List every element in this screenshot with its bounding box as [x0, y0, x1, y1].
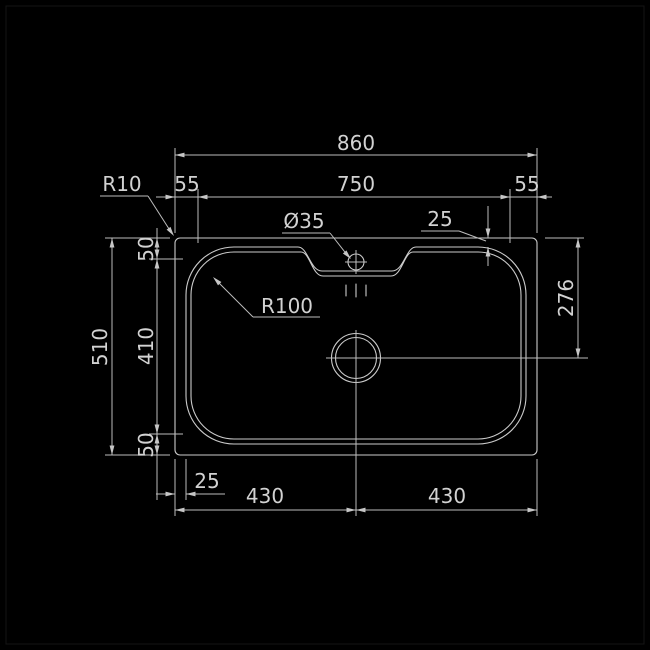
dim-label: 430 [428, 484, 466, 508]
sink-outline [175, 238, 588, 516]
arrowhead [486, 229, 491, 239]
leader-line [216, 280, 253, 317]
leader-line [148, 196, 171, 232]
image-border [6, 6, 644, 644]
dim-outer-corner-radius: R10 [100, 172, 176, 237]
arrowhead [528, 153, 538, 158]
arrowhead [347, 508, 357, 513]
dim-label: 50 [134, 236, 158, 261]
arrowhead [175, 153, 185, 158]
dim-label: 430 [246, 484, 284, 508]
dim-label: 860 [337, 131, 375, 155]
arrowhead [110, 238, 115, 248]
dim-label: R10 [102, 172, 141, 196]
arrowhead [356, 508, 366, 513]
dim-label: Ø35 [283, 209, 324, 233]
dim-label: 750 [337, 172, 375, 196]
tap-hole [345, 250, 367, 274]
leader-line [459, 231, 486, 241]
dim-label: 25 [194, 469, 219, 493]
arrowhead [501, 195, 511, 200]
arrowhead [528, 508, 538, 513]
dim-label: 410 [134, 327, 158, 365]
drawing-canvas: 860 55 750 55 R10 Ø35 [0, 0, 650, 650]
dim-label: 55 [174, 172, 199, 196]
dimensions: 860 55 750 55 R10 Ø35 [88, 131, 584, 516]
overflow-marks [346, 284, 366, 297]
arrowhead [166, 492, 176, 497]
arrowhead [175, 508, 185, 513]
dim-tap-hole-diameter: Ø35 [282, 209, 353, 261]
dim-label: 510 [88, 328, 112, 366]
dim-bowl-height-chain: 50 410 50 [134, 228, 183, 500]
dim-label: 55 [514, 172, 539, 196]
technical-drawing: 860 55 750 55 R10 Ø35 [0, 0, 650, 650]
dim-rim-offset-top: 25 [421, 206, 490, 266]
arrowhead [576, 349, 581, 359]
arrowhead [576, 238, 581, 248]
dim-label: R100 [261, 294, 313, 318]
dim-bowl-corner-radius: R100 [211, 275, 320, 318]
dim-label: 25 [427, 207, 452, 231]
arrowhead [110, 446, 115, 456]
dim-label: 50 [134, 432, 158, 457]
dim-label: 276 [554, 279, 578, 317]
dim-drain-center-from-top: 276 [545, 238, 584, 358]
dim-bowl-width-row: 55 750 55 [156, 172, 552, 243]
dim-rim-offset-left: 25 [156, 459, 225, 500]
